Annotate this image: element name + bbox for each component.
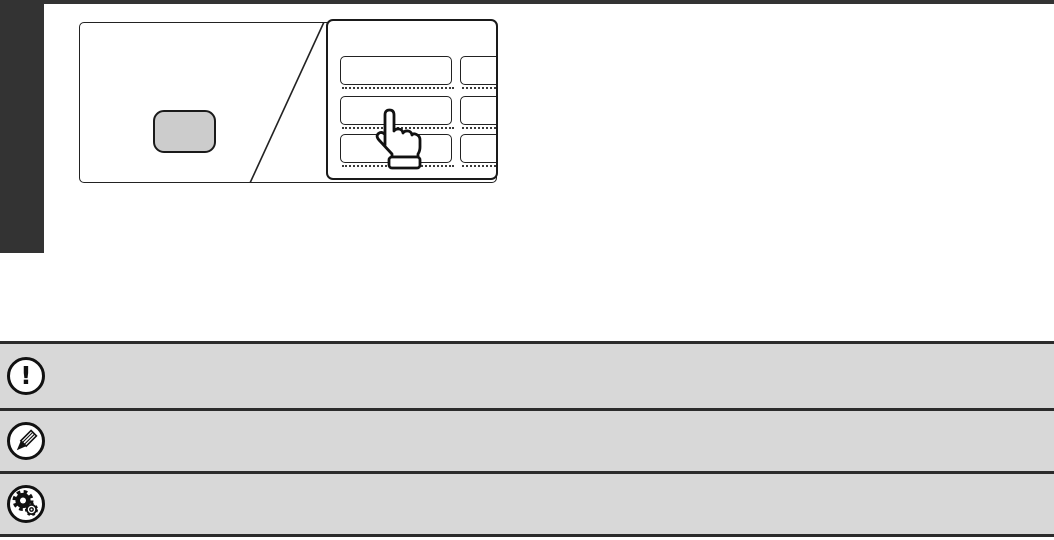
- note-bar: [0, 411, 1054, 474]
- caution-bar: !: [0, 344, 1054, 411]
- touch-key: [340, 56, 452, 85]
- system-settings-bar: [0, 474, 1054, 537]
- exclamation-glyph: !: [20, 363, 31, 388]
- pointing-hand-icon: [368, 107, 428, 171]
- note-bars: !: [0, 341, 1054, 537]
- page-top-rule: [0, 0, 1054, 4]
- chapter-side-tab: [0, 0, 44, 253]
- exclamation-icon: !: [7, 357, 45, 395]
- machine-key: [153, 110, 216, 153]
- touch-key: [460, 56, 498, 85]
- gears-icon: [7, 485, 45, 523]
- touch-key: [460, 96, 498, 125]
- touch-key: [460, 134, 498, 163]
- manual-page: { "document": { "kind": "manual-page-exc…: [0, 0, 1054, 540]
- pencil-icon: [7, 422, 45, 460]
